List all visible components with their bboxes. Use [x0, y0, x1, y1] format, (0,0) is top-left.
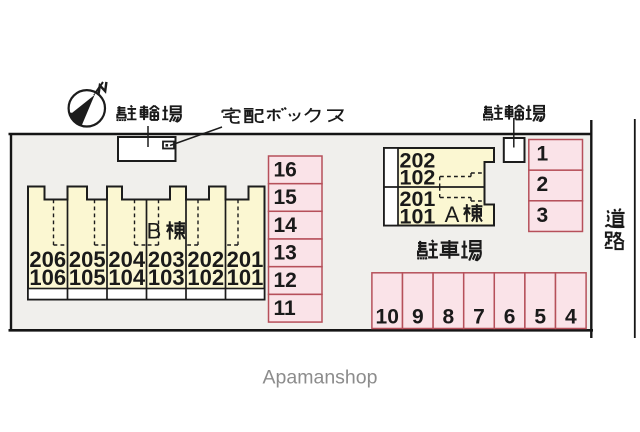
svg-text:14: 14: [274, 214, 298, 237]
svg-text:103: 103: [148, 265, 185, 290]
svg-text:106: 106: [29, 265, 66, 290]
svg-text:5: 5: [534, 306, 546, 329]
svg-text:102: 102: [400, 166, 436, 190]
svg-text:B: B: [147, 219, 162, 244]
svg-text:104: 104: [108, 265, 145, 290]
svg-text:Apamanshop: Apamanshop: [263, 367, 378, 389]
svg-text:7: 7: [473, 306, 485, 329]
svg-text:12: 12: [274, 269, 297, 292]
svg-text:101: 101: [400, 205, 436, 229]
svg-text:105: 105: [69, 265, 106, 290]
svg-text:4: 4: [565, 306, 577, 329]
svg-text:6: 6: [504, 306, 516, 329]
svg-text:A: A: [445, 202, 460, 227]
svg-text:10: 10: [376, 306, 399, 329]
svg-text:11: 11: [274, 297, 297, 320]
svg-text:8: 8: [443, 306, 455, 329]
svg-text:9: 9: [412, 306, 424, 329]
svg-text:102: 102: [187, 265, 224, 290]
svg-text:1: 1: [537, 143, 549, 166]
svg-text:101: 101: [227, 265, 264, 290]
svg-text:13: 13: [274, 242, 297, 265]
svg-text:3: 3: [537, 204, 549, 227]
svg-text:2: 2: [537, 173, 549, 196]
svg-text:15: 15: [274, 186, 298, 209]
svg-text:16: 16: [274, 159, 297, 182]
